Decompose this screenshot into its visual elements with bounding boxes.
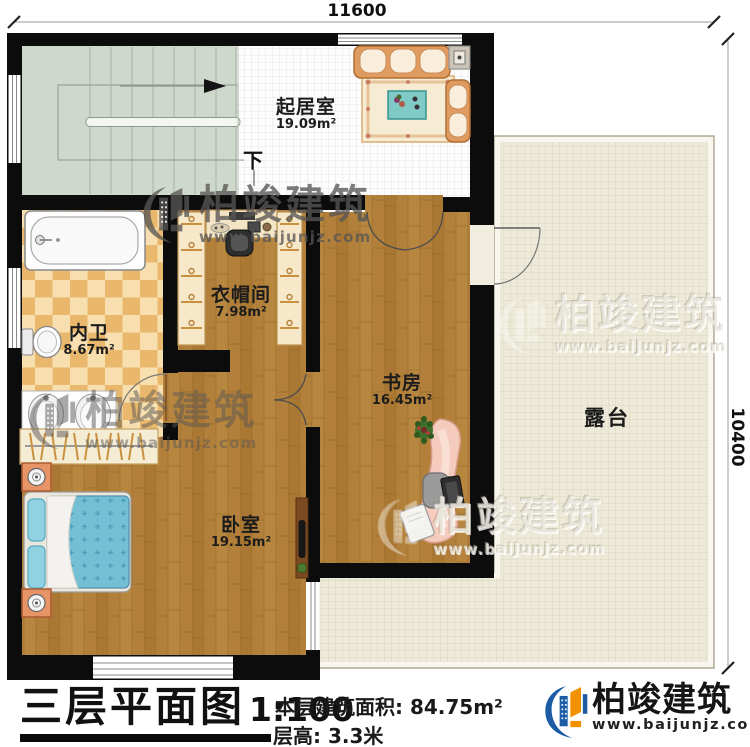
- brand-name: 柏竣建筑: [592, 683, 732, 717]
- room-label-bathroom: 内卫 8.67m²: [63, 323, 114, 359]
- stool: [226, 230, 253, 256]
- brand-website: www.baijunjz.com: [592, 717, 750, 733]
- tv-unit: [296, 498, 308, 578]
- room-label-study: 书房 16.45m²: [372, 373, 432, 409]
- closet-rail: [20, 429, 158, 464]
- toilet: [22, 327, 61, 358]
- brand-logo-icon: [540, 681, 590, 743]
- dimension-height-label: 10400: [727, 407, 747, 466]
- bed: [24, 492, 131, 592]
- pillow: [28, 546, 45, 588]
- title-underline: [20, 734, 271, 742]
- floor-area-text: 本层建筑面积: 84.75m²: [275, 691, 503, 720]
- plan-title: 三层平面图: [20, 686, 245, 728]
- sofa-set: [354, 46, 470, 142]
- floor-height-text: 层高: 3.3米: [273, 720, 383, 747]
- room-label-cloakroom: 衣帽间 7.98m²: [211, 285, 271, 321]
- bathtub: [25, 211, 145, 270]
- pillow: [28, 499, 45, 541]
- coffee-table: [388, 91, 426, 119]
- room-label-terrace: 露台: [584, 407, 630, 431]
- room-label-bedroom: 卧室 19.15m²: [211, 515, 271, 551]
- floor-plan-canvas: 起居室 19.09m² 衣帽间 7.98m² 内卫 8.67m² 书房 16.4…: [0, 0, 750, 747]
- stairs-direction-label: 下: [243, 145, 263, 174]
- room-label-living: 起居室 19.09m²: [276, 97, 336, 133]
- dimension-width-label: 11600: [327, 1, 386, 21]
